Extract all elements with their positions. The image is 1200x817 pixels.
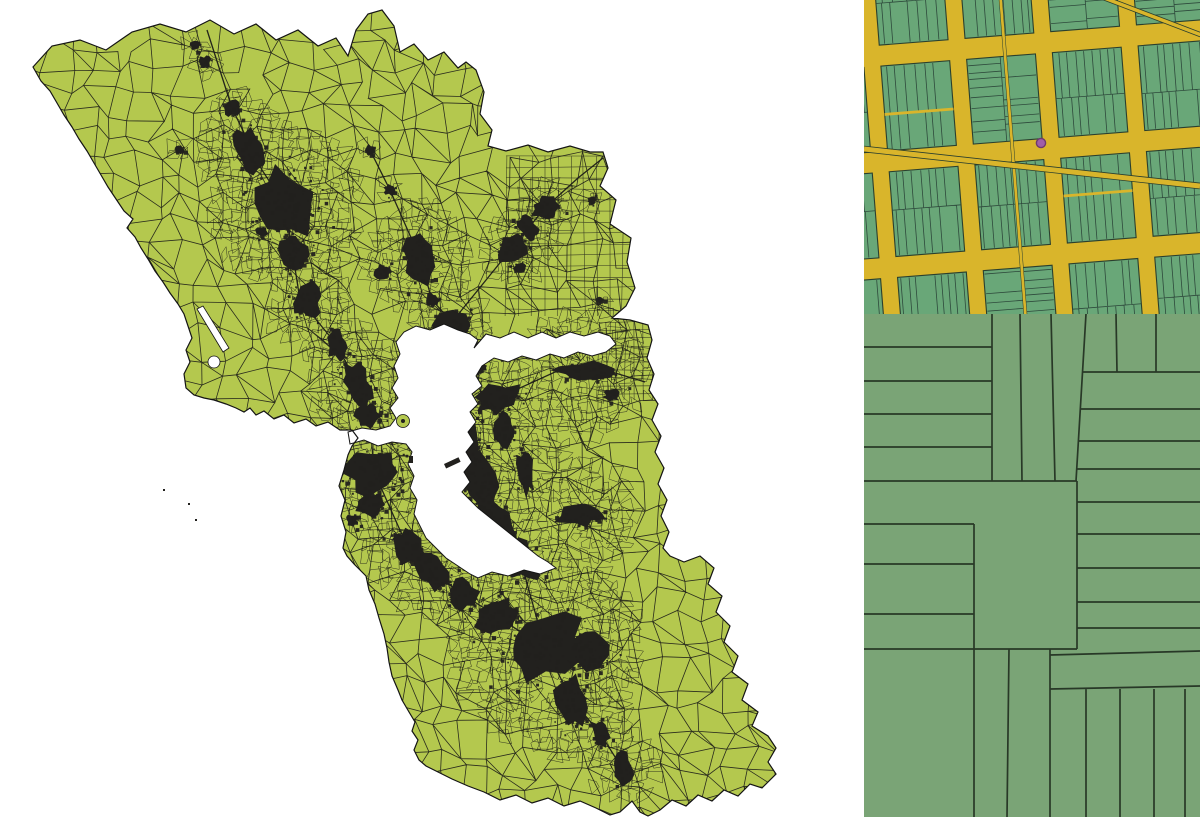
estero-water <box>208 356 220 368</box>
treasure-island <box>409 456 413 463</box>
figure-canvas <box>0 0 1200 817</box>
regional-map-panel[interactable] <box>0 0 860 817</box>
offshore-islet <box>188 503 190 505</box>
offshore-islet <box>163 489 165 491</box>
location-marker[interactable] <box>1036 138 1045 147</box>
offshore-islet <box>195 519 197 521</box>
urban-detail-panel[interactable] <box>864 0 1200 314</box>
rural-detail-panel[interactable] <box>864 314 1200 817</box>
rural-land <box>864 314 1200 817</box>
